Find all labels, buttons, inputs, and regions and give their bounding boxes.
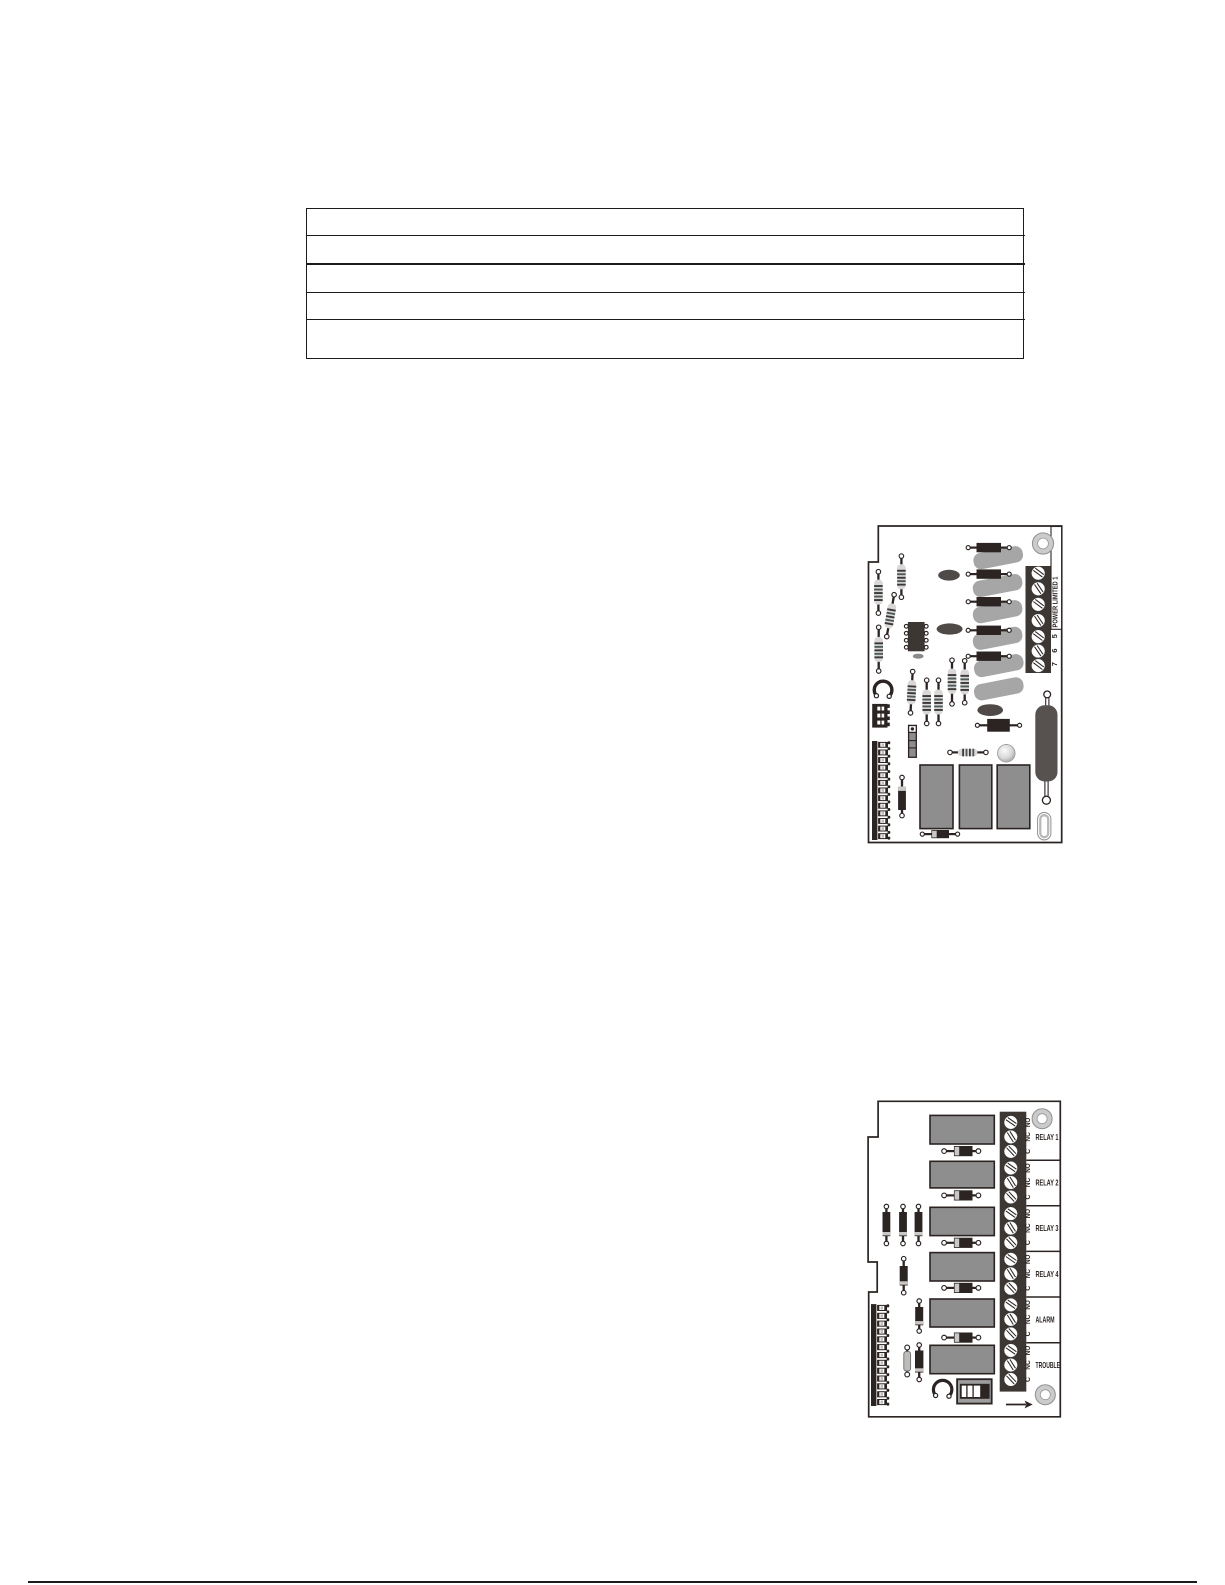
svg-text:NO: NO (1023, 1163, 1032, 1173)
svg-text:NO: NO (1023, 1346, 1032, 1356)
svg-text:NC: NC (1023, 1177, 1032, 1187)
svg-text:C: C (1023, 1285, 1032, 1290)
svg-text:NC: NC (1023, 1269, 1032, 1279)
svg-text:NC: NC (1023, 1223, 1032, 1233)
svg-text:POWER LIMITED 1: POWER LIMITED 1 (1050, 576, 1059, 628)
svg-text:C: C (1023, 1194, 1032, 1199)
svg-text:NO: NO (1023, 1118, 1032, 1128)
svg-text:C: C (1023, 1148, 1032, 1153)
svg-text:TROUBLE: TROUBLE (1036, 1361, 1061, 1370)
svg-text:RELAY 2: RELAY 2 (1036, 1179, 1059, 1188)
svg-text:C: C (1023, 1331, 1032, 1336)
svg-text:NC: NC (1023, 1132, 1032, 1142)
svg-text:C: C (1023, 1240, 1032, 1245)
svg-text:RELAY 3: RELAY 3 (1036, 1224, 1059, 1233)
svg-text:C: C (1023, 1377, 1032, 1382)
svg-text:NC: NC (1023, 1360, 1032, 1370)
svg-text:ALARM: ALARM (1036, 1315, 1055, 1324)
svg-text:NO: NO (1023, 1254, 1032, 1264)
svg-text:NO: NO (1023, 1209, 1032, 1219)
svg-text:RELAY 1: RELAY 1 (1036, 1133, 1059, 1142)
svg-text:NO: NO (1023, 1300, 1032, 1310)
svg-text:6: 6 (1050, 648, 1059, 652)
svg-text:7: 7 (1050, 662, 1059, 666)
svg-text:NC: NC (1023, 1314, 1032, 1324)
svg-text:RELAY 4: RELAY 4 (1036, 1270, 1059, 1279)
